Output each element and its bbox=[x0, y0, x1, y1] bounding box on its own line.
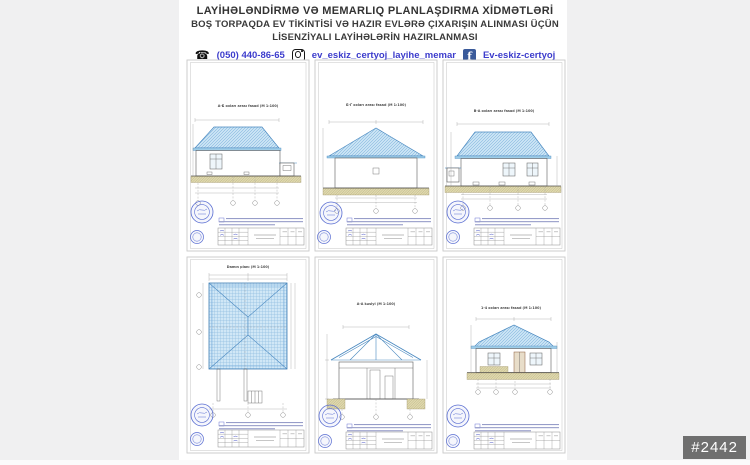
sheet-title: Б-Г oxları arası fasad (M 1:100) bbox=[346, 103, 406, 107]
wall bbox=[335, 158, 417, 188]
sheet-roof-plan: Damın planı (M 1:100) bbox=[187, 257, 309, 453]
header-title-line2: BOŞ TORPAQDA EV TİKİNTİSİ VƏ HAZIR EVLƏR… bbox=[0, 19, 750, 30]
sheet-title: A-A kəsiyi (M 1:100) bbox=[357, 302, 396, 306]
footing bbox=[407, 399, 425, 409]
eave-band bbox=[471, 346, 557, 349]
approval-stamp-icon bbox=[191, 201, 213, 223]
sheet-title: В-А oxları arası fasad (M 1:100) bbox=[474, 109, 535, 113]
annex bbox=[447, 168, 459, 182]
approval-stamp-icon bbox=[447, 201, 469, 223]
sheet-facade-a-b: A-Б oxları arası fasad (M 1:100) bbox=[187, 60, 309, 251]
sheet-titleblock bbox=[474, 432, 560, 449]
eave-band bbox=[193, 148, 281, 151]
sheet-titleblock bbox=[346, 432, 432, 449]
sheet-section-a-a: A-A kəsiyi (M 1:100) bbox=[315, 257, 437, 453]
approval-stamp-icon bbox=[191, 433, 204, 446]
eave-band bbox=[327, 156, 425, 158]
approval-stamp-icon bbox=[319, 435, 332, 448]
ground bbox=[445, 187, 561, 193]
sheet-facade-v-a: В-А oxları arası fasad (M 1:100) bbox=[443, 60, 565, 251]
bottom-strip bbox=[0, 460, 750, 465]
post-id-badge: #2442 bbox=[683, 436, 746, 459]
sheet-facade-1-4: 1-4 oxları arası fasad (M 1:100) bbox=[443, 257, 565, 453]
section-walls bbox=[339, 362, 413, 399]
annex bbox=[280, 163, 294, 176]
sheet-titleblock bbox=[218, 430, 304, 447]
approval-stamp-icon bbox=[447, 231, 460, 244]
approval-stamp-icon bbox=[318, 231, 331, 244]
sheet-title: 1-4 oxları arası fasad (M 1:100) bbox=[481, 306, 541, 310]
ground bbox=[467, 373, 559, 380]
sheet-titleblock bbox=[218, 228, 304, 245]
sheet-title: A-Б oxları arası fasad (M 1:100) bbox=[218, 104, 279, 108]
sheet-facade-b-q: Б-Г oxları arası fasad (M 1:100) bbox=[315, 60, 437, 251]
sheet-titleblock bbox=[346, 228, 432, 245]
header: LAYİHƏLƏNDİRMƏ VƏ MEMARLIQ PLANLAŞDIRMA … bbox=[0, 0, 750, 63]
approval-stamp-icon bbox=[319, 405, 341, 427]
sheet-title: Damın planı (M 1:100) bbox=[227, 265, 270, 269]
approval-stamp-icon bbox=[447, 435, 460, 448]
instagram-flash-dot bbox=[301, 50, 303, 52]
header-title-line1: LAYİHƏLƏNDİRMƏ VƏ MEMARLIQ PLANLAŞDIRMA … bbox=[0, 5, 750, 17]
bench bbox=[480, 367, 508, 373]
ground bbox=[191, 177, 301, 183]
approval-stamp-icon bbox=[447, 405, 469, 427]
approval-stamp-icon bbox=[191, 231, 204, 244]
header-title-line3: LİSENZİYALI LAYİHƏLƏRİN HAZIRLANMASI bbox=[0, 32, 750, 43]
approval-stamp-icon bbox=[320, 202, 342, 224]
flyer-page: LAYİHƏLƏNDİRMƏ VƏ MEMARLIQ PLANLAŞDIRMA … bbox=[0, 0, 750, 465]
sheet-titleblock bbox=[474, 228, 560, 245]
eave-band bbox=[455, 156, 551, 159]
drawing-sheets-grid: A-Б oxları arası fasad (M 1:100) bbox=[179, 58, 567, 465]
instagram-lens bbox=[295, 51, 301, 57]
approval-stamp-icon bbox=[191, 404, 213, 426]
ground bbox=[323, 189, 429, 196]
